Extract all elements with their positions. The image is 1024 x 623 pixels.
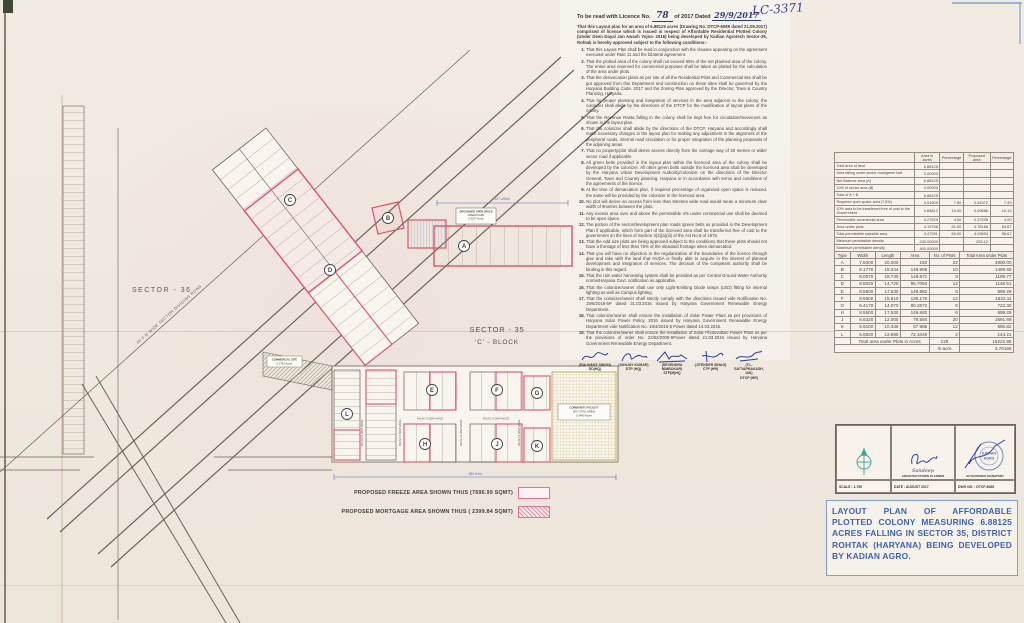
svg-text:F: F <box>495 388 499 394</box>
table-row: Total permissible saleable area4.4728165… <box>835 230 1014 237</box>
svg-text:ROAD 9.00M WIDE: ROAD 9.00M WIDE <box>360 419 364 446</box>
table-row: L5.682012.69072.10462144.21 <box>835 331 1014 338</box>
date-label: DATE : AUGUST 2017 <box>891 480 955 493</box>
architect-cell: Sandeep ARCHITECT/TOWN PLANNER <box>891 425 955 480</box>
svg-text:ROAD 9.00M WIDE: ROAD 9.00M WIDE <box>459 419 463 446</box>
svg-text:K: K <box>535 444 540 450</box>
svg-text:B: B <box>386 216 391 222</box>
sector-roads <box>0 50 625 623</box>
table-row: Area falling under sector road/green bel… <box>835 170 1014 177</box>
svg-text:ROAD 9.00M WIDE: ROAD 9.00M WIDE <box>398 419 402 446</box>
svg-text:COMMERCIAL SITE: COMMERCIAL SITE <box>272 358 297 362</box>
svg-text:A: A <box>462 244 467 250</box>
licence-condition: That the odd size plots are being approv… <box>586 239 767 249</box>
signature-squiggle <box>655 350 689 363</box>
licence-condition: That for proper planning and integration… <box>586 98 767 114</box>
plot-total-row: Total area under Plots in Acres 128 1522… <box>835 338 1014 345</box>
svg-text:0.3440 Acres: 0.3440 Acres <box>576 414 592 418</box>
licence-condition: That the rain water harvesting system sh… <box>586 273 767 283</box>
freeze-swatch <box>518 487 550 499</box>
legend-mortgage-label: PROPOSED MORTGAGE AREA SHOWN THUS ( 2399… <box>342 509 513 515</box>
licence-condition: That colonizer/owner shall ensure the in… <box>586 313 767 329</box>
table-row: C8.007018.730149.97181199.77 <box>835 273 1014 280</box>
table-row: A7.500020.000150324800.00 <box>835 259 1014 266</box>
signatory-cell: KADIAN AGRO AUTHORISED SIGNATORY <box>955 425 1015 480</box>
signatures-row: (BALWANT SINGH) DD(HQ) (SANJAY KUMAR) DT… <box>577 350 767 381</box>
plan-legend: PROPOSED FREEZE AREA SHOWN THUS (7696.99… <box>300 487 550 525</box>
table-row: Net Balance area (A)6.88125 <box>835 177 1014 184</box>
licence-condition: That the colonizer/owner shall strictly … <box>586 296 767 312</box>
svg-text:0.5157 Acres: 0.5157 Acres <box>468 217 484 221</box>
table-row: K5.610010.33657.98512695.82 <box>835 323 1014 330</box>
sheet-left-edge <box>3 0 62 623</box>
table-row: F8.550015.810135.176121622.11 <box>835 295 1014 302</box>
licence-condition: No plot will derive an access from less … <box>586 199 767 209</box>
company-stamp: KADIAN AGRO <box>961 438 1009 474</box>
drawing-title-box: LAYOUT PLAN OF AFFORDABLE PLOTTED COLONY… <box>826 500 1018 576</box>
licence-condition: That the colonizer shall abide by the di… <box>586 126 767 147</box>
dwg-no-label: DWG NO. : DTCP-6089 <box>955 480 1015 493</box>
licence-condition: That the demarcation plans as per site o… <box>586 75 767 96</box>
legend-freeze-label: PROPOSED FREEZE AREA SHOWN THUS (7696.99… <box>354 490 513 496</box>
table-row: Total of A + B6.88125 <box>835 191 1014 198</box>
licence-text-block: To be read with Licence No. 78 of 2017 D… <box>577 10 767 380</box>
signature-squiggle <box>619 350 649 363</box>
revenue-rasta-strip <box>63 106 84 454</box>
table-row: Minimum permissible density240.00000253.… <box>835 238 1014 245</box>
open-space-row: 127.406m ORGANISED OPEN SPACE GREEN PARK… <box>434 197 572 266</box>
table-row: B8.177018.344149.999101499.99 <box>835 266 1014 273</box>
svg-text:G: G <box>535 391 540 397</box>
signature-squiggle <box>734 350 764 363</box>
licence-condition: That this Layout Plan shall be read in c… <box>586 47 767 57</box>
freeze-row-outline <box>434 226 572 266</box>
licence-condition: At the time of demarcation plan, if requ… <box>586 187 767 197</box>
licence-condition: That the colonizer/owner shall ensure th… <box>586 330 767 346</box>
svg-text:ROAD 9.00M WIDE: ROAD 9.00M WIDE <box>517 419 521 446</box>
community-facility-area: COMMUNITY FACILITY (5% TOTAL AREA) 0.344… <box>552 372 616 460</box>
table-row: Area under plots4.1975661.003.7616854.67 <box>835 223 1014 230</box>
handwritten-licence-date: 29/9/2017 <box>712 10 761 21</box>
signature-block: (BALWANT SINGH) DD(HQ) <box>577 350 613 381</box>
area-statement-table: Area in acres Percentage Proposed area P… <box>834 152 1014 252</box>
licence-condition: Any excess area over and above the permi… <box>586 211 767 221</box>
mortgage-swatch <box>518 506 550 518</box>
licence-header: To be read with Licence No. 78 of 2017 D… <box>577 10 767 21</box>
plot-types-table: Type Width Length Area No. of Plots Tota… <box>834 251 1014 353</box>
north-arrow-icon <box>853 446 875 476</box>
svg-text:L: L <box>345 412 349 418</box>
svg-text:COMMUNITY FACILITY: COMMUNITY FACILITY <box>569 406 598 410</box>
table-row: 10% of sector area (B)0.00000 <box>835 184 1014 191</box>
svg-text:D: D <box>328 268 333 274</box>
legend-mortgage-row: PROPOSED MORTGAGE AREA SHOWN THUS ( 2399… <box>300 506 550 518</box>
title-block: Sandeep ARCHITECT/TOWN PLANNER KADIAN AG… <box>835 424 1016 494</box>
table-row: H8.550017.530149.8826899.29 <box>835 309 1014 316</box>
svg-text:(5% TOTAL AREA): (5% TOTAL AREA) <box>573 410 596 414</box>
signature-block: (DEVENDRA NIMBOKAR) STP(M)HQ <box>654 350 690 381</box>
licence-intro: That this Layout plan for an area of 6.8… <box>577 24 767 45</box>
svg-text:C: C <box>288 198 293 204</box>
svg-text:H: H <box>423 442 427 448</box>
licence-condition: That the colonizer/owner shall use only … <box>586 285 767 295</box>
scale-label: SCALE : 1:750 <box>836 480 891 493</box>
table-row: G6.417014.07090.28728722.30 <box>835 302 1014 309</box>
signature-squiggle <box>580 350 610 363</box>
licence-condition: That no property/plot shall derive acces… <box>586 148 767 158</box>
svg-text:0.2752 Acres: 0.2752 Acres <box>277 362 293 366</box>
signature-block: (SANJAY KUMAR) DTP (HQ) <box>616 350 652 381</box>
table-row: 10% area to be transferred free of cost … <box>835 206 1014 216</box>
svg-text:ROAD 9.00M WIDE: ROAD 9.00M WIDE <box>483 417 510 421</box>
licence-condition: All green belts provided in the layout p… <box>586 160 767 186</box>
dim-bottom: 182.94m <box>468 472 482 476</box>
svg-text:E: E <box>430 388 434 394</box>
sheet-frame-line <box>952 2 1022 4</box>
licence-condition: That the Revenue Rasta falling in the co… <box>586 115 767 125</box>
commercial-site-area: COMMERCIAL SITE 0.2752 Acres <box>263 352 332 390</box>
signature-squiggle <box>698 350 724 363</box>
table-row: Required open space area (7.5%)0.516097.… <box>835 199 1014 206</box>
sector-36-label: SECTOR - 36 <box>132 287 192 294</box>
licence-conditions-list: That this Layout Plan shall be read in c… <box>577 47 767 346</box>
svg-text:ORGANISED OPEN SPACE: ORGANISED OPEN SPACE <box>459 210 493 214</box>
licence-condition: The portion of the sector/development pl… <box>586 222 767 238</box>
dim-top: 127.406m <box>494 197 510 201</box>
table-row: J6.632012.00079.584201591.68 <box>835 316 1014 323</box>
table-row: E8.550017.530149.8826899.29 <box>835 287 1014 294</box>
bottom-plot-section: COMMUNITY FACILITY (5% TOTAL AREA) 0.344… <box>332 366 618 480</box>
licence-condition: That you will have no objection to the r… <box>586 251 767 272</box>
handwritten-licence-number: 78 <box>652 11 673 22</box>
table-row: Total area of land6.88125 <box>835 163 1014 170</box>
svg-text:J: J <box>495 442 498 448</box>
legend-freeze-row: PROPOSED FREEZE AREA SHOWN THUS (7696.99… <box>300 487 550 499</box>
svg-text:GREEN PARK: GREEN PARK <box>468 213 485 217</box>
svg-text:SECTOR - 35: SECTOR - 35 <box>470 325 525 334</box>
upper-plot-band <box>212 128 418 365</box>
svg-text:ROAD 9.00M WIDE: ROAD 9.00M WIDE <box>417 417 444 421</box>
svg-text:AGRO: AGRO <box>984 457 995 461</box>
table-row: Permissible commercial area0.275254.000.… <box>835 216 1014 223</box>
table-row: D6.502014.72095.7094121148.51 <box>835 280 1014 287</box>
plot-acre-row: In acre 3.76168 <box>835 345 1014 352</box>
licence-condition: That the plotted area of the colony shal… <box>586 59 767 75</box>
signature-block: (T.L. SATYAPRAKASH, IAS) DTCP (HR) <box>731 350 767 381</box>
sector-35-block-label: SECTOR - 35 'C' - BLOCK <box>470 325 525 346</box>
north-arrow-cell <box>836 425 891 480</box>
sheet-frame-line <box>1019 2 1021 44</box>
drawing-title: LAYOUT PLAN OF AFFORDABLE PLOTTED COLONY… <box>832 506 1012 562</box>
signature-block: (JITENDER SIHAG) CTP (HR) <box>693 350 729 381</box>
architect-signature <box>906 450 940 468</box>
svg-text:'C' - BLOCK: 'C' - BLOCK <box>475 339 519 346</box>
